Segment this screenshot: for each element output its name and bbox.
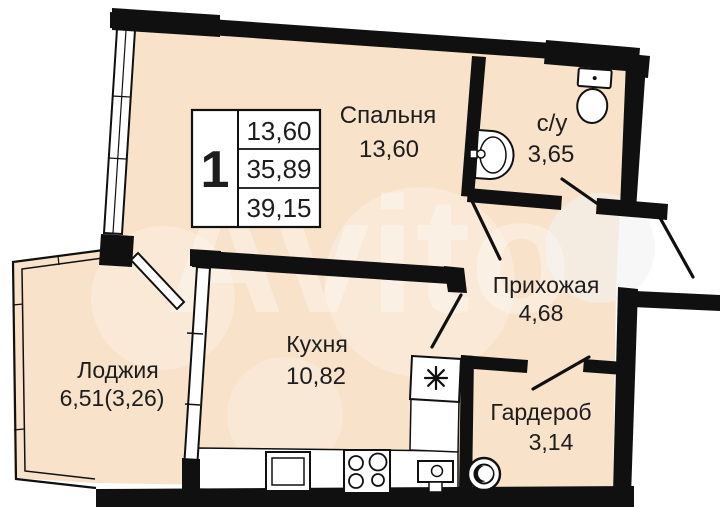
legend-rooms-count: 1 <box>201 141 230 199</box>
legend-living-area: 13,60 <box>246 116 311 146</box>
room-name: с/у <box>537 110 568 137</box>
vent-asterisk-icon <box>425 367 447 389</box>
floor-plan-svg: Avito 1 13,60 35,89 39,15 <box>0 0 720 507</box>
room-area: 3,14 <box>529 429 574 455</box>
floor-plan-image: Avito 1 13,60 35,89 39,15 <box>0 0 720 507</box>
room-name: Кухня <box>286 331 348 357</box>
room-name: Прихожая <box>493 272 600 298</box>
room-area: 4,68 <box>519 300 564 326</box>
legend-total-area: 39,15 <box>246 193 311 223</box>
room-area: 10,82 <box>286 363 346 390</box>
washing-machine-icon <box>468 458 500 490</box>
legend-area: 35,89 <box>246 154 311 184</box>
counter-column <box>410 399 459 452</box>
room-area: 13,60 <box>359 136 419 163</box>
room-name: Лоджия <box>77 357 159 383</box>
room-name: Спальня <box>340 102 436 129</box>
room-name: Гардероб <box>490 399 591 425</box>
kitchen-sink-icon <box>266 452 310 491</box>
legend-table: 1 13,60 35,89 39,15 <box>192 110 320 227</box>
room-area: 3,65 <box>528 141 575 168</box>
stove-icon <box>344 450 390 493</box>
room-area: 6,51(3,26) <box>60 385 165 411</box>
